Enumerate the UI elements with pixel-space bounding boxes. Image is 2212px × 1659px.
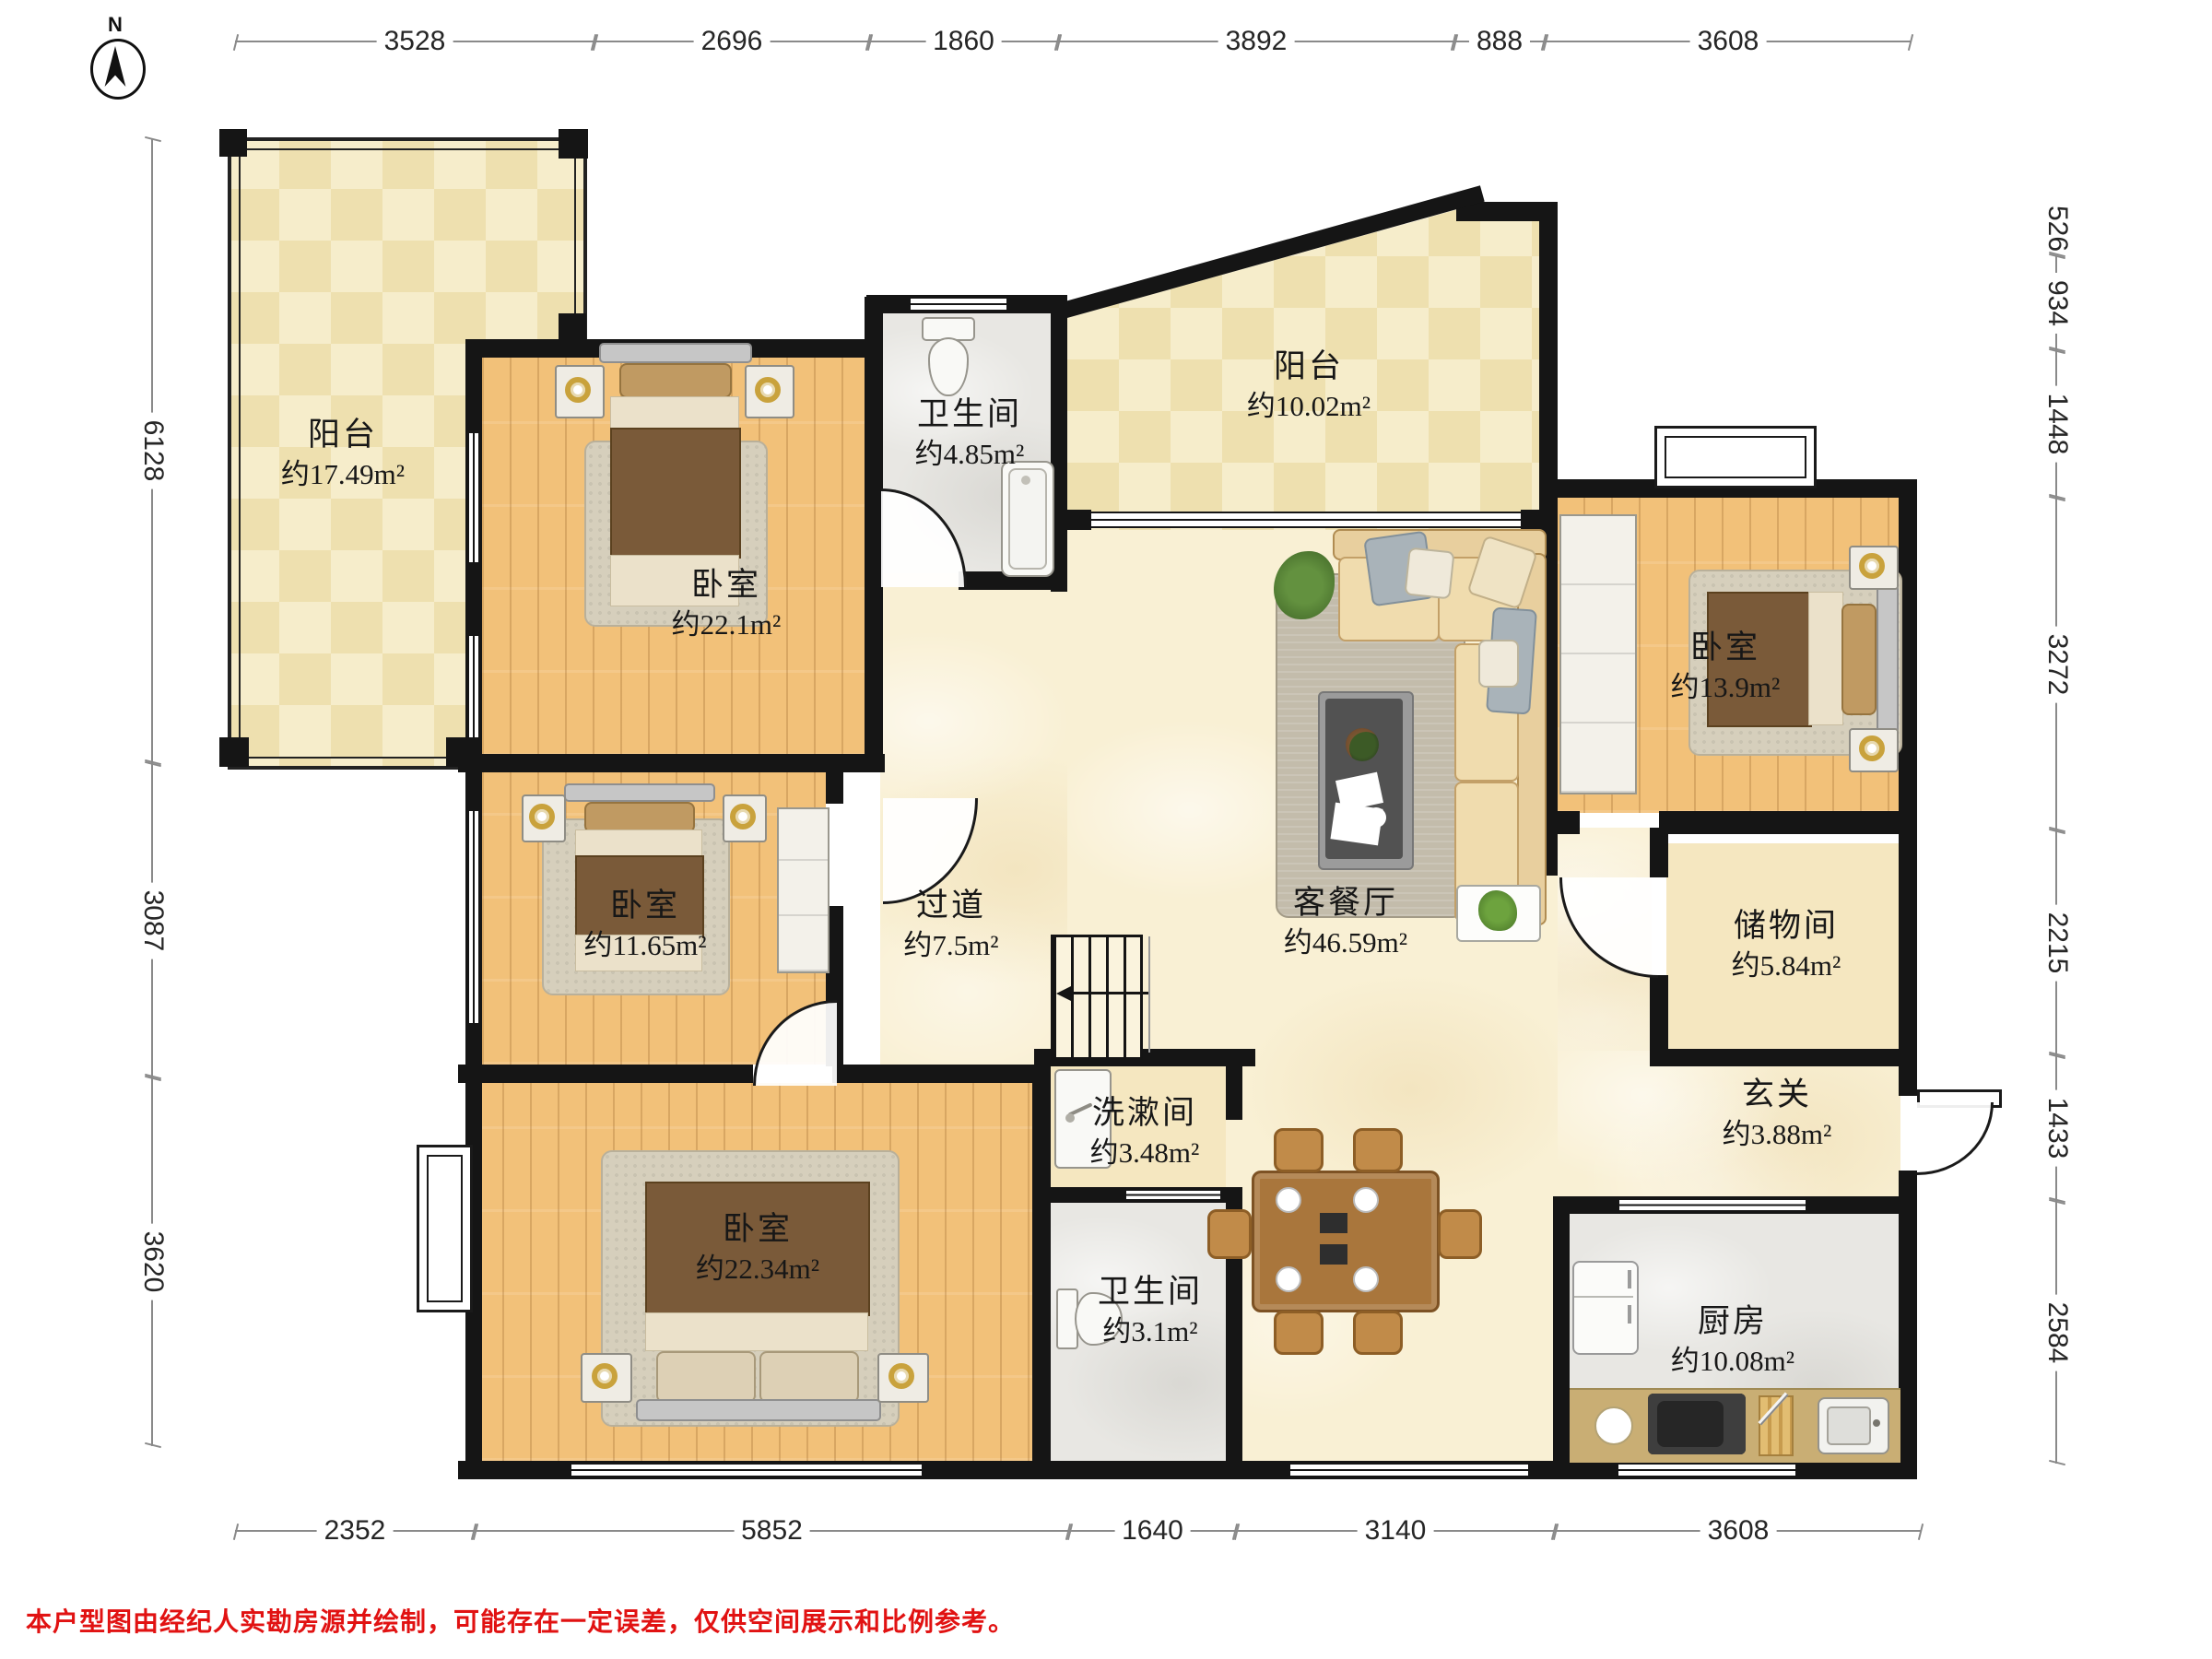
- dim-value: 934: [2041, 272, 2073, 333]
- dining-chair: [1438, 1209, 1482, 1259]
- dim-top-4: 3892: [1058, 41, 1454, 42]
- dim-right-5: 2215: [2055, 830, 2057, 1055]
- room-label-kitchen: 厨房 约10.08m²: [1671, 1300, 1794, 1380]
- room-name: 储物间: [1732, 905, 1841, 947]
- room-label-bedroom-east: 卧室 约13.9m²: [1671, 627, 1781, 706]
- room-area: 约11.65m²: [583, 927, 706, 964]
- lamp-icon: [565, 377, 591, 403]
- balcony-north-outline: [228, 766, 472, 770]
- balcony-north-outline-inner: [239, 757, 472, 759]
- room-label-corridor: 过道 约7.5m²: [903, 885, 998, 964]
- dim-bottom-3: 1640: [1069, 1530, 1236, 1532]
- bed-headboard: [599, 343, 752, 363]
- dim-top-2: 2696: [594, 41, 869, 42]
- bed-sheet: [610, 396, 739, 429]
- dim-left-2: 3087: [151, 763, 153, 1077]
- balcony-north-outline: [583, 137, 587, 342]
- sink-basin: [1827, 1406, 1871, 1445]
- room-area: 约10.08m²: [1671, 1343, 1794, 1380]
- entry-door-arc: [1917, 1102, 1994, 1175]
- wall: [1226, 1049, 1242, 1120]
- room-area: 约5.84m²: [1732, 947, 1841, 984]
- room-name: 过道: [903, 885, 998, 927]
- room-area: 约46.59m²: [1284, 924, 1407, 961]
- dim-value: 3528: [377, 26, 453, 57]
- lamp-icon: [1859, 735, 1885, 761]
- dim-value: 2352: [317, 1515, 394, 1547]
- dim-value: 1860: [925, 26, 1002, 57]
- room-label-balcony-east: 阳台 约10.02m²: [1247, 346, 1371, 425]
- window: [1091, 512, 1521, 528]
- dining-chair: [1353, 1128, 1403, 1172]
- room-label-entry: 玄关 约3.88m²: [1723, 1074, 1832, 1153]
- dim-value: 3608: [1700, 1515, 1777, 1547]
- floor-plan: 阳台 约17.49m² 卧室 约22.1m² 卫生间 约4.85m² 阳台 约1…: [0, 0, 2212, 1659]
- sliding-door-bathroom: [1126, 1189, 1220, 1201]
- wall: [1659, 811, 1917, 834]
- window: [571, 1463, 922, 1477]
- dim-right-6: 1433: [2055, 1055, 2057, 1201]
- bay-window-south-bedroom: [417, 1145, 473, 1312]
- dim-value: 1448: [2041, 386, 2073, 463]
- lamp-icon: [755, 377, 781, 403]
- dim-right-2: 934: [2055, 255, 2057, 350]
- wall: [1650, 1049, 1917, 1066]
- balcony-north-outline: [228, 137, 587, 141]
- window: [1618, 1463, 1795, 1477]
- placemat: [1320, 1244, 1347, 1265]
- staircase-arrowhead: [1056, 985, 1073, 1002]
- dim-value: 888: [1469, 26, 1530, 57]
- room-area: 约17.49m²: [281, 456, 405, 493]
- room-area: 约7.5m²: [903, 927, 998, 964]
- bed-pillow: [759, 1351, 859, 1403]
- window: [467, 433, 480, 562]
- dim-value: 3608: [1690, 26, 1767, 57]
- dim-right-3: 1448: [2055, 350, 2057, 498]
- room-name: 卧室: [672, 564, 782, 606]
- room-name: 卫生间: [1098, 1271, 1203, 1313]
- dim-value: 2584: [2041, 1294, 2073, 1371]
- wall-corner-block: [559, 129, 588, 159]
- dim-bottom-5: 3608: [1555, 1530, 1922, 1532]
- dim-bottom-2: 5852: [475, 1530, 1069, 1532]
- dim-left-3: 3620: [151, 1077, 153, 1446]
- room-name: 厨房: [1671, 1300, 1794, 1343]
- wall-corner-block: [559, 313, 586, 341]
- window: [1290, 1463, 1528, 1477]
- dim-value: 5852: [734, 1515, 810, 1547]
- lamp-icon: [730, 804, 756, 829]
- dim-value: 6128: [137, 413, 169, 489]
- compass: N: [85, 13, 146, 101]
- wall: [1899, 479, 1917, 1096]
- wall: [826, 772, 843, 804]
- dining-chair: [1353, 1311, 1403, 1355]
- wall-corner-block: [219, 737, 249, 767]
- dim-value: 3272: [2041, 626, 2073, 702]
- dim-bottom-4: 3140: [1236, 1530, 1555, 1532]
- stove-icon: [1648, 1394, 1746, 1454]
- wall: [1556, 811, 1580, 834]
- bed-headboard: [564, 783, 715, 802]
- dim-value: 3140: [1358, 1515, 1434, 1547]
- dim-top-3: 1860: [869, 41, 1058, 42]
- room-area: 约10.02m²: [1247, 388, 1371, 425]
- plate: [1353, 1187, 1379, 1213]
- bed-blanket: [610, 428, 741, 559]
- dim-value: 2215: [2041, 905, 2073, 982]
- plate: [1276, 1266, 1301, 1292]
- wall: [1067, 510, 1091, 530]
- bed-sheet: [575, 829, 702, 857]
- room-area: 约22.34m²: [696, 1251, 819, 1288]
- lamp-icon: [1859, 553, 1885, 579]
- dim-right-4: 3272: [2055, 498, 2057, 830]
- bay-window-east-bedroom: [1654, 426, 1817, 488]
- dim-top-6: 3608: [1545, 41, 1912, 42]
- room-label-storage: 储物间 约5.84m²: [1732, 905, 1841, 984]
- lamp-icon: [592, 1363, 618, 1389]
- balcony-north-outline: [228, 137, 231, 770]
- window: [911, 297, 1006, 312]
- fridge-handle: [1628, 1305, 1631, 1324]
- fridge-handle: [1628, 1270, 1631, 1288]
- bed-pillow: [619, 363, 732, 398]
- dim-bottom-1: 2352: [235, 1530, 475, 1532]
- room-label-bedroom-south: 卧室 约22.34m²: [696, 1208, 819, 1288]
- sofa-pillow: [1478, 640, 1519, 688]
- room-area: 约22.1m²: [672, 606, 782, 643]
- dim-value: 1640: [1114, 1515, 1191, 1547]
- table-plant-icon: [1346, 728, 1379, 761]
- room-name: 洗漱间: [1090, 1092, 1200, 1135]
- sofa-pillow: [1404, 547, 1454, 600]
- room-name: 卧室: [1671, 627, 1781, 669]
- balcony-north-outline-inner: [239, 148, 587, 150]
- dim-value: 1433: [2041, 1090, 2073, 1167]
- dim-value: 3087: [137, 882, 169, 959]
- bed-pillow: [584, 802, 695, 833]
- faucet-dot: [1873, 1419, 1880, 1427]
- wall: [865, 297, 883, 756]
- window: [467, 636, 480, 737]
- bed-pillow: [1841, 604, 1877, 715]
- room-name: 卧室: [583, 885, 706, 927]
- room-area: 约4.85m²: [915, 436, 1025, 473]
- wall: [1032, 1066, 1051, 1477]
- dim-top-5: 888: [1454, 41, 1545, 42]
- room-name: 阳台: [281, 414, 405, 456]
- room-label-bathroom-bottom: 卫生间 约3.1m²: [1098, 1271, 1203, 1350]
- dim-left-1: 6128: [151, 138, 153, 763]
- room-name: 卫生间: [915, 394, 1025, 436]
- lamp-icon: [529, 804, 555, 829]
- sliding-door-kitchen: [1619, 1198, 1806, 1212]
- room-label-balcony-north: 阳台 约17.49m²: [281, 414, 405, 493]
- room-label-bedroom-nw: 卧室 约22.1m²: [672, 564, 782, 643]
- room-area: 约3.48m²: [1090, 1135, 1200, 1171]
- lamp-icon: [888, 1363, 914, 1389]
- wall: [458, 754, 885, 772]
- room-area: 约13.9m²: [1671, 669, 1781, 706]
- dining-chair: [1207, 1209, 1252, 1259]
- staircase-arrow: [1071, 992, 1148, 994]
- room-area: 约3.88m²: [1723, 1116, 1832, 1153]
- room-area: 约3.1m²: [1098, 1313, 1203, 1350]
- room-name: 阳台: [1247, 346, 1371, 388]
- wall: [1899, 1171, 1917, 1477]
- dim-value: 3892: [1218, 26, 1295, 57]
- plant-icon: [1478, 890, 1517, 931]
- plate: [1276, 1187, 1301, 1213]
- bed-sheet: [645, 1312, 868, 1351]
- wall: [458, 1065, 753, 1083]
- window: [467, 811, 480, 1023]
- wall-corner-block: [219, 129, 247, 157]
- room-name: 玄关: [1723, 1074, 1832, 1116]
- room-label-bedroom-mid: 卧室 约11.65m²: [583, 885, 706, 964]
- wall: [1553, 1196, 1570, 1477]
- room-label-washroom: 洗漱间 约3.48m²: [1090, 1092, 1200, 1171]
- room-name: 客餐厅: [1284, 882, 1407, 924]
- table-cup: [1366, 807, 1386, 828]
- balcony-north-outline-inner: [239, 148, 241, 759]
- dim-value: 3620: [137, 1224, 169, 1300]
- dim-right-1: 526: [2055, 202, 2057, 255]
- plate: [1353, 1266, 1379, 1292]
- dim-top-1: 3528: [235, 41, 594, 42]
- bowl-icon: [1594, 1406, 1633, 1445]
- room-name: 卧室: [696, 1208, 819, 1251]
- shower-dot: [1065, 1113, 1075, 1123]
- room-label-living-dining: 客餐厅 约46.59m²: [1284, 882, 1407, 961]
- bathtub-drain: [1021, 476, 1030, 485]
- placemat: [1320, 1213, 1347, 1233]
- bed-pillow: [656, 1351, 756, 1403]
- dim-value: 2696: [694, 26, 771, 57]
- dim-right-7: 2584: [2055, 1201, 2057, 1464]
- bed-headboard: [636, 1399, 881, 1421]
- bed-sheet: [1808, 592, 1843, 725]
- wall: [1650, 828, 1668, 877]
- bed-headboard: [1877, 584, 1899, 734]
- disclaimer-text: 本户型图由经纪人实勘房源并绘制，可能存在一定误差，仅供空间展示和比例参考。: [26, 1602, 1015, 1639]
- wardrobe: [1559, 514, 1637, 794]
- fridge-divider: [1574, 1296, 1633, 1298]
- dining-chair: [1274, 1311, 1324, 1355]
- wall: [832, 1065, 1034, 1083]
- room-label-bathroom-top: 卫生间 约4.85m²: [915, 394, 1025, 473]
- compass-n-label: N: [85, 13, 146, 37]
- staircase-rail: [1148, 936, 1150, 1053]
- dining-chair: [1274, 1128, 1324, 1172]
- wardrobe: [777, 807, 829, 973]
- dim-value: 526: [2041, 198, 2073, 259]
